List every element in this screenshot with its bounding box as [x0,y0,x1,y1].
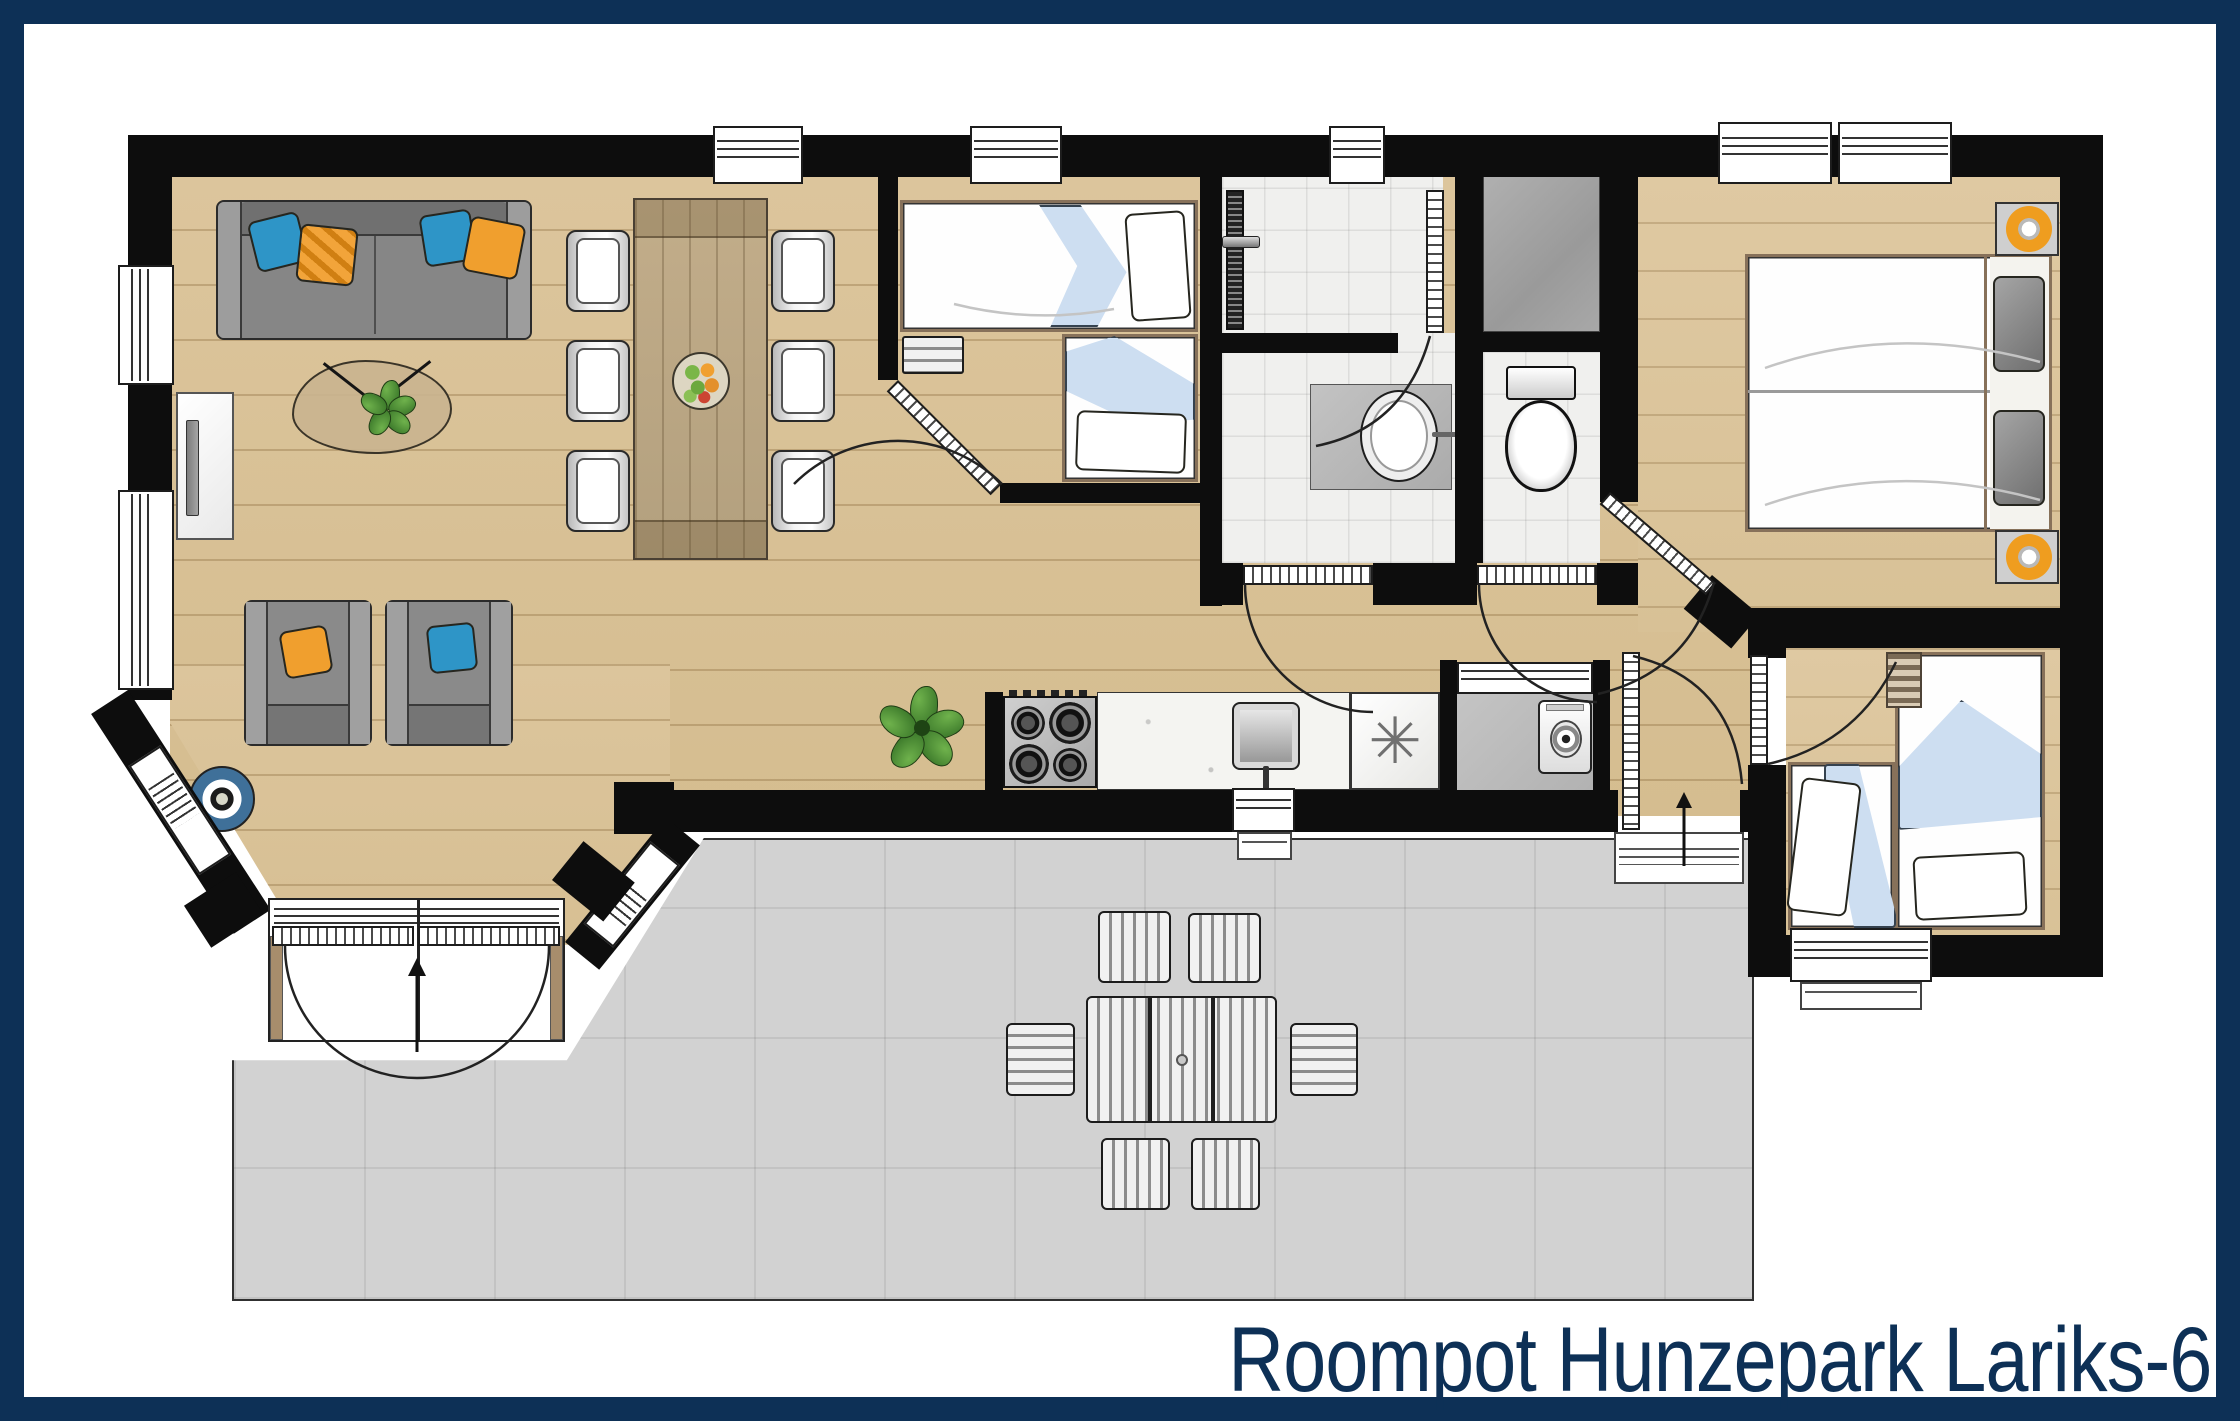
floorplan: ✳ [24,24,2216,1397]
page-title: Roompot Hunzepark Lariks-6 [1229,1308,2212,1413]
floorplan-canvas: ✳ [0,0,2240,1421]
door-swing-arcs [24,24,2216,1397]
